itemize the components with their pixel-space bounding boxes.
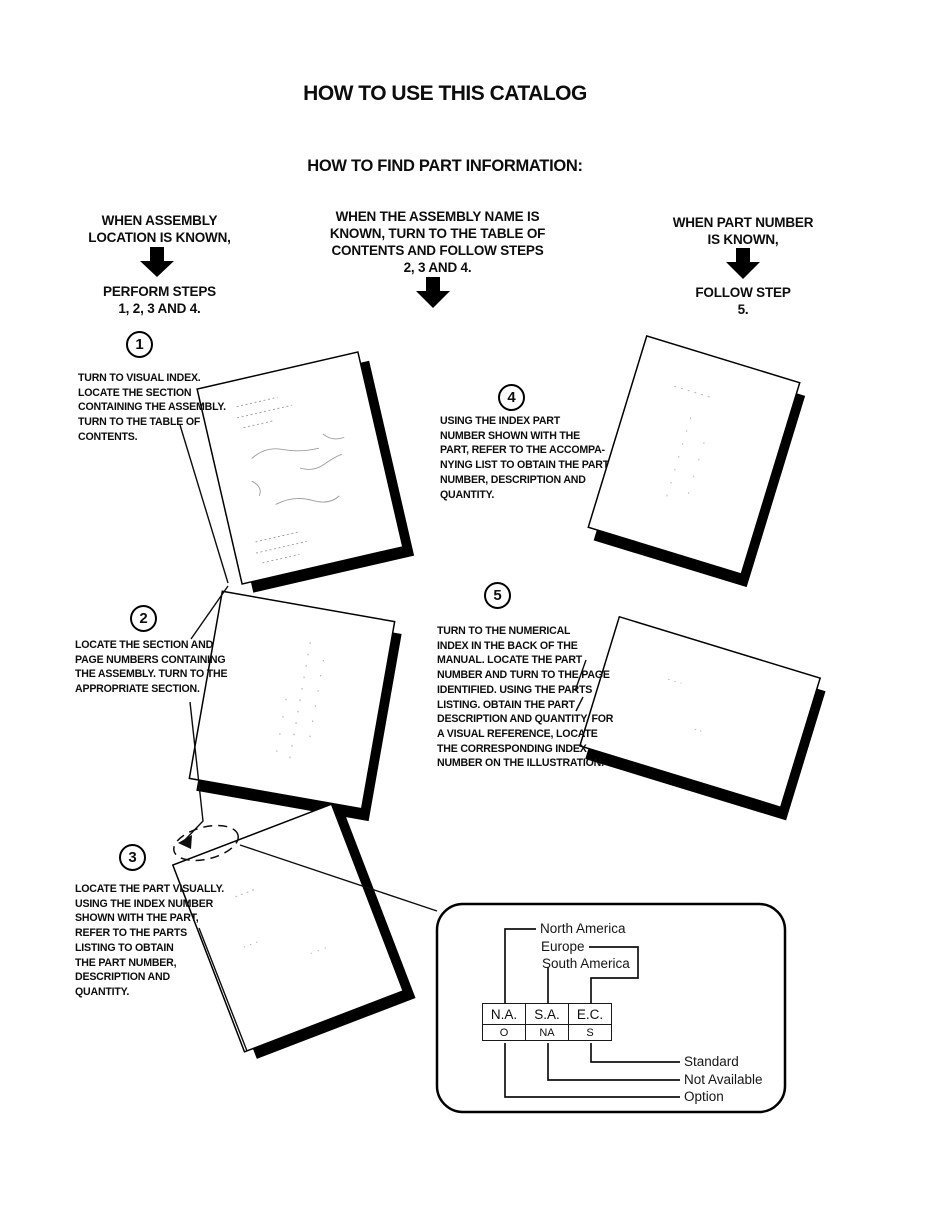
availability-table: N.A. S.A. E.C. O NA S (482, 1003, 612, 1041)
availability-table-header-row: N.A. S.A. E.C. (483, 1004, 612, 1025)
page-title: HOW TO USE THIS CATALOG (0, 82, 890, 106)
region-label-north-america: North America (540, 921, 626, 937)
availability-header-ec: E.C. (569, 1004, 612, 1025)
step-2-text: LOCATE THE SECTION AND PAGE NUMBERS CONT… (75, 638, 250, 697)
step-1-badge: 1 (126, 331, 153, 358)
step-3-badge: 3 (119, 844, 146, 871)
code-label-standard: Standard (684, 1054, 739, 1070)
column-1-action: PERFORM STEPS 1, 2, 3 AND 4. (62, 283, 257, 317)
down-arrow-icon (726, 248, 760, 279)
column-1-condition: WHEN ASSEMBLY LOCATION IS KNOWN, (62, 212, 257, 246)
step-3-text: LOCATE THE PART VISUALLY. USING THE INDE… (75, 882, 245, 1000)
code-label-not-available: Not Available (684, 1072, 763, 1088)
column-3-condition: WHEN PART NUMBER IS KNOWN, (648, 214, 838, 248)
step-4-badge: 4 (498, 384, 525, 411)
column-2-condition: WHEN THE ASSEMBLY NAME IS KNOWN, TURN TO… (295, 208, 580, 276)
column-3-action: FOLLOW STEP 5. (648, 284, 838, 318)
availability-header-sa: S.A. (526, 1004, 569, 1025)
step-4-number: 4 (507, 389, 515, 406)
step-1-number: 1 (135, 336, 143, 353)
region-label-europe: Europe (541, 939, 585, 955)
step-2-badge: 2 (130, 605, 157, 632)
step-3-number: 3 (128, 849, 136, 866)
catalog-page-2-illustration (187, 591, 403, 821)
section-heading: HOW TO FIND PART INFORMATION: (0, 157, 890, 176)
down-arrow-icon (140, 247, 174, 277)
step-4-text: USING THE INDEX PART NUMBER SHOWN WITH T… (440, 414, 625, 502)
catalog-instruction-page: HOW TO USE THIS CATALOG HOW TO FIND PART… (0, 0, 935, 1210)
availability-header-na: N.A. (483, 1004, 526, 1025)
down-arrow-icon (416, 277, 450, 308)
code-label-option: Option (684, 1089, 724, 1105)
availability-table-value-row: O NA S (483, 1025, 612, 1041)
step-5-badge: 5 (484, 582, 511, 609)
step-5-number: 5 (493, 587, 501, 604)
availability-value-ec: S (569, 1025, 612, 1041)
callout-arrowhead-icon (178, 835, 192, 849)
step-1-text: TURN TO VISUAL INDEX. LOCATE THE SECTION… (78, 371, 248, 445)
region-label-south-america: South America (542, 956, 630, 972)
availability-value-sa: NA (526, 1025, 569, 1041)
step-5-text: TURN TO THE NUMERICAL INDEX IN THE BACK … (437, 624, 627, 771)
availability-value-na: O (483, 1025, 526, 1041)
step-2-number: 2 (139, 610, 147, 627)
